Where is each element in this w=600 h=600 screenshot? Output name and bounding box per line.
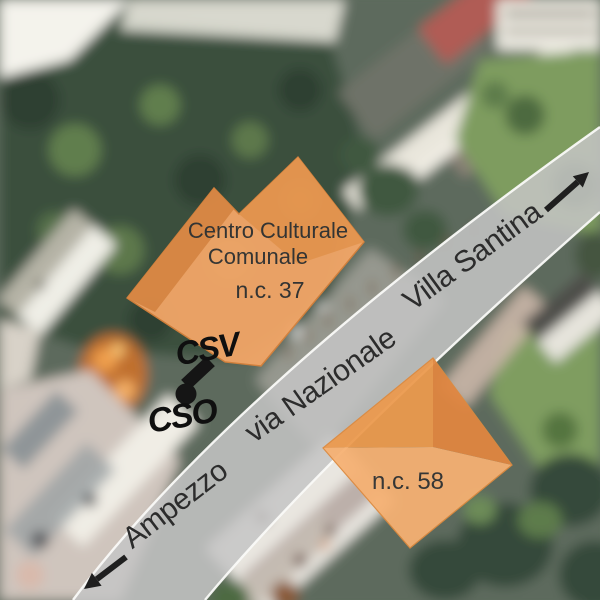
building-37-civic-number: n.c. 37 [235,277,304,303]
building-58-civic-number: n.c. 58 [372,468,444,495]
aerial-map: Ampezzo via Nazionale Villa Santina Cent… [0,0,600,600]
aerial-map-annotation-image: Ampezzo via Nazionale Villa Santina Cent… [0,0,600,600]
building-37-name-line2: Comunale [208,244,308,269]
building-37-name-line1: Centro Culturale [188,218,348,243]
